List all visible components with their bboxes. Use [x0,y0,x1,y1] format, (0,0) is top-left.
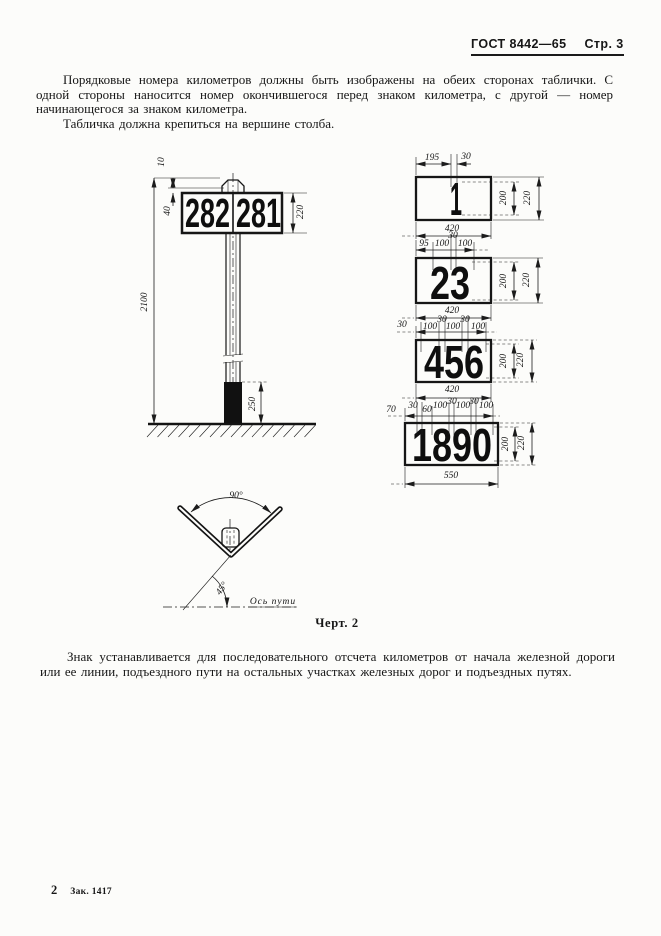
post-base-black [224,382,242,424]
plate-number: 456 [424,336,484,388]
figure-caption: Черт. 2 [277,616,397,631]
dimension-label: 30 [460,152,471,162]
dimension-label: 220 [296,205,306,220]
post-drawing: 2100 10 40 282 281 220 [140,157,316,437]
dimension-label: 200 [499,191,509,206]
ground-hatching [147,425,316,437]
intro-text-block: Порядковые номера километров должны быть… [36,73,613,132]
dimension-label: 30 [447,231,458,241]
dimension-label: 60 [422,405,432,415]
dimension-label: 250 [248,397,258,412]
plate-number: 23 [430,257,470,309]
plate-drawing-1890: 1890 70 30 60 100 30 100 30 100 200 [386,397,537,488]
dimension-label: 200 [499,274,509,289]
dimension-label: 100 [423,322,438,332]
dimension-label: 10 [157,157,167,167]
dimension-label: 100 [433,401,448,411]
dimension-label: 550 [444,471,459,481]
print-order-number: Зак. 1417 [70,887,112,897]
dimension-label: 420 [445,385,460,395]
post-cross-section [222,528,239,547]
dimension-label: 195 [425,153,440,163]
dimension-label: 30 [468,397,479,407]
plate-number: 1 [450,173,462,225]
km-number-left: 282 [185,190,230,236]
dimension-label: 40 [163,206,173,216]
plate-drawing-1: 1 195 30 200 220 420 [402,152,544,239]
dimension-label: 70 [386,405,396,415]
bracket-drawing: 90° 45° Ось пути [163,490,298,610]
track-axis-label: Ось пути [250,597,296,607]
dimension-label: 420 [445,306,460,316]
page-label: Стр. 3 [584,37,623,51]
plate-drawing-456: 456 30 100 30 100 30 100 200 220 [396,315,537,402]
dimension-label: 100 [471,322,486,332]
dimension-label: 2100 [140,292,150,311]
page-header: ГОСТ 8442—65 Стр. 3 [471,37,624,56]
dimension-label: 95 [419,239,429,249]
post-body [223,233,243,382]
paragraph-km-numbers: Порядковые номера километров должны быть… [36,73,613,117]
gost-standard-page: ГОСТ 8442—65 Стр. 3 Порядковые номера ки… [0,0,661,936]
dimension-label: 100 [479,401,494,411]
dimension-label: 200 [499,354,509,369]
dimension-label: 100 [446,322,461,332]
angle-label-90: 90° [229,490,243,501]
angle-label-45: 45° [214,580,231,597]
dimension-label: 100 [435,239,450,249]
installation-text-block: Знак устанавливается для последовательно… [40,650,615,679]
dimension-label: 30 [459,315,470,325]
km-number-right: 281 [236,190,281,236]
dimension-label: 220 [516,353,526,368]
dimension-label: 30 [396,320,407,330]
dimension-label: 100 [458,239,473,249]
paragraph-installation: Знак устанавливается для последовательно… [40,650,615,679]
gost-number: ГОСТ 8442—65 [471,37,566,51]
dimension-label: 200 [501,437,511,452]
sheet-number: 2 [51,883,57,898]
dimension-label: 220 [522,273,532,288]
plate-drawing-23: 23 95 100 30 100 200 220 420 [402,231,543,321]
dimension-label: 100 [456,401,471,411]
plate-number: 1890 [412,419,492,471]
paragraph-plate-mounting: Табличка должна крепиться на вершине сто… [36,117,613,132]
dimension-label: 220 [517,436,527,451]
technical-drawing-fig2: 2100 10 40 282 281 220 [0,140,661,640]
dimension-label: 30 [407,401,418,411]
dimension-label: 220 [523,191,533,206]
page-footer: 2 Зак. 1417 [51,883,112,898]
